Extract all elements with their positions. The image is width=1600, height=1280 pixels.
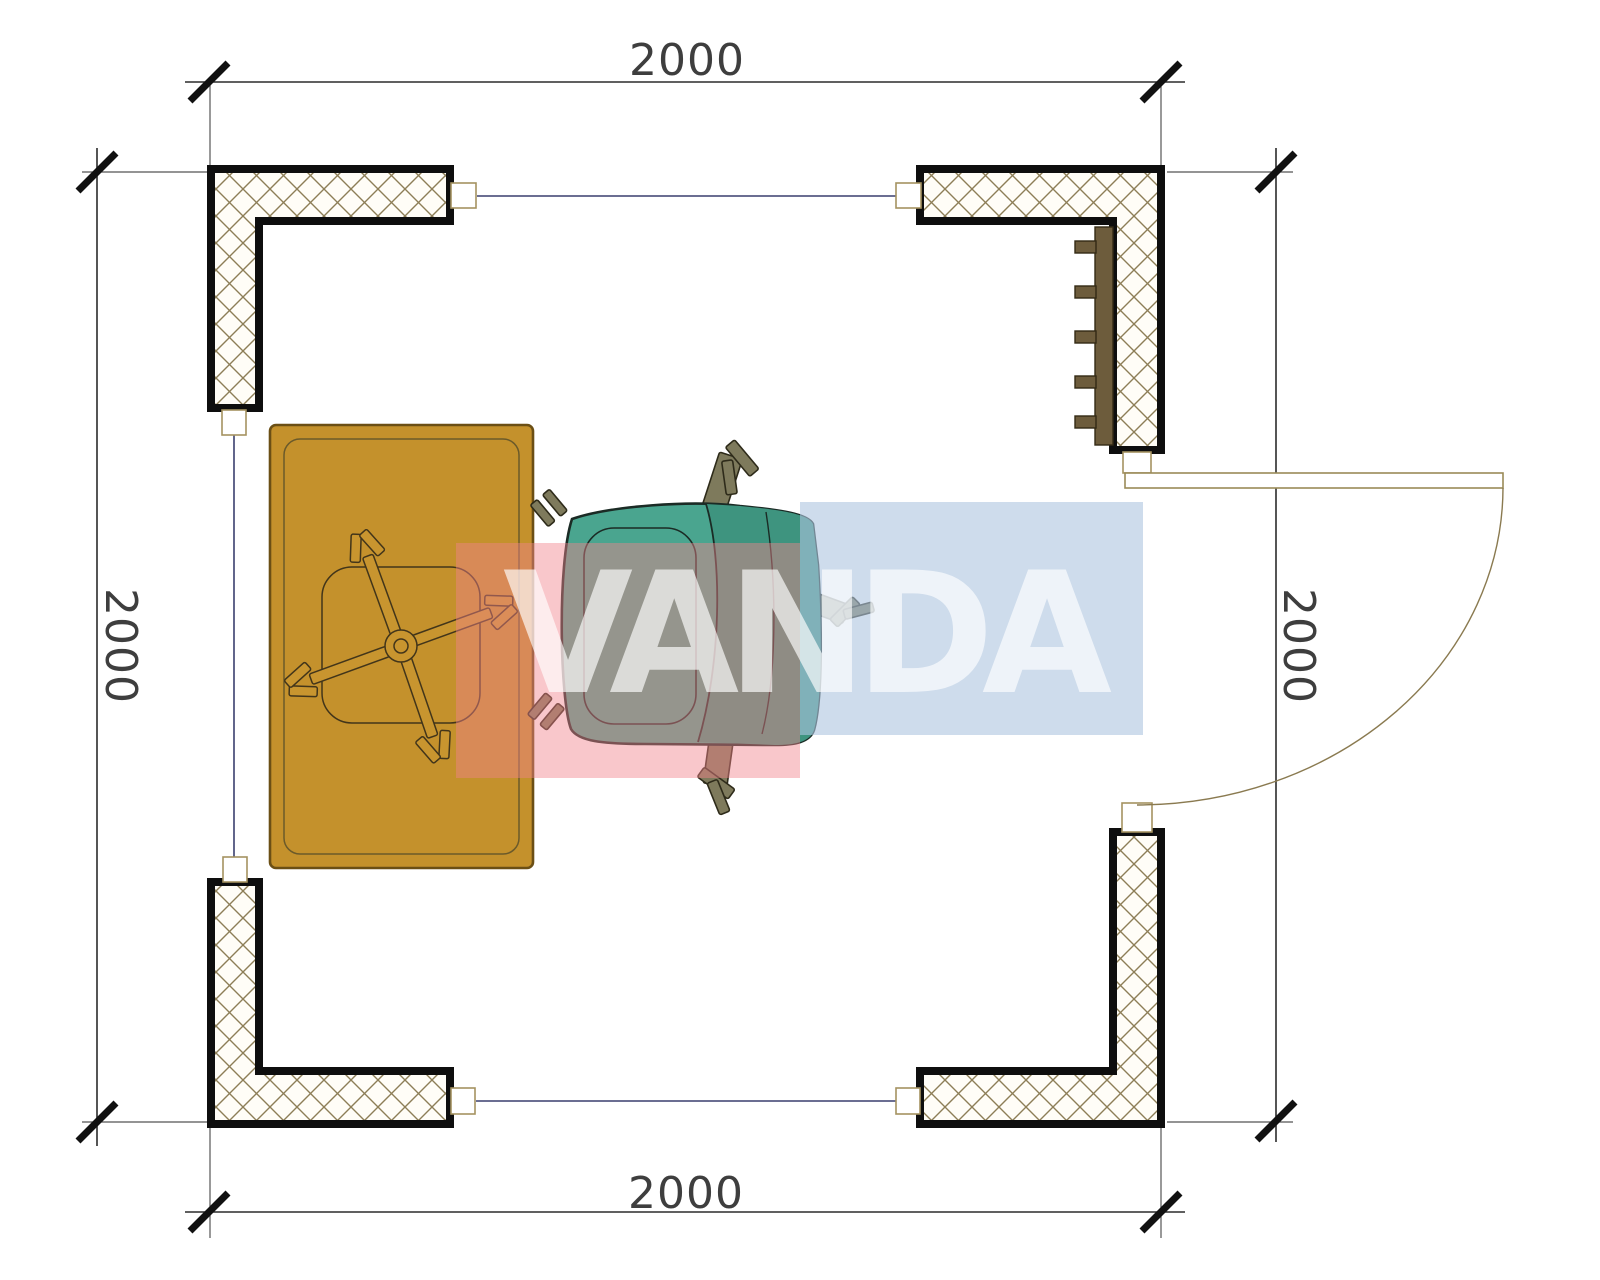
radiator — [1075, 227, 1113, 445]
chair-leg-left-upper — [530, 489, 567, 527]
floor-plan-canvas: 2000 2000 2000 2000 — [0, 0, 1600, 1280]
window-jamb-marker — [451, 183, 476, 208]
watermark: VANDA — [456, 502, 1143, 778]
door-leaf — [1125, 473, 1503, 488]
dimension-top: 2000 — [185, 35, 1185, 168]
stool-hub-inner — [394, 639, 408, 653]
window-jamb-marker — [223, 857, 247, 882]
dim-bottom-label: 2000 — [628, 1168, 744, 1219]
door-jamb-marker — [1123, 452, 1151, 473]
dim-right-label: 2000 — [1273, 588, 1324, 704]
dim-left-label: 2000 — [95, 588, 146, 704]
window-jamb-marker — [222, 410, 246, 435]
dimension-right: 2000 — [1167, 148, 1324, 1142]
dimension-bottom: 2000 — [185, 1124, 1185, 1238]
wall-corner-bottom-right — [920, 832, 1161, 1124]
radiator-fin — [1075, 331, 1096, 343]
wall-corner-bottom-left — [211, 882, 450, 1124]
door-jamb-marker — [1122, 803, 1152, 832]
radiator-body — [1095, 227, 1113, 445]
radiator-fin — [1075, 286, 1096, 298]
dim-top-label: 2000 — [629, 35, 745, 86]
floor-plan-document: 2000 2000 2000 2000 — [0, 0, 1600, 1280]
window-jamb-marker — [896, 183, 921, 208]
radiator-fin — [1075, 376, 1096, 388]
wall-corner-top-left — [211, 169, 450, 408]
radiator-fin — [1075, 416, 1096, 428]
radiator-fin — [1075, 241, 1096, 253]
wall-corner-top-right — [920, 169, 1161, 450]
watermark-text: VANDA — [503, 536, 1115, 732]
window-jamb-marker — [896, 1088, 920, 1114]
window-jamb-marker — [451, 1088, 475, 1114]
dimension-left: 2000 — [78, 148, 209, 1146]
